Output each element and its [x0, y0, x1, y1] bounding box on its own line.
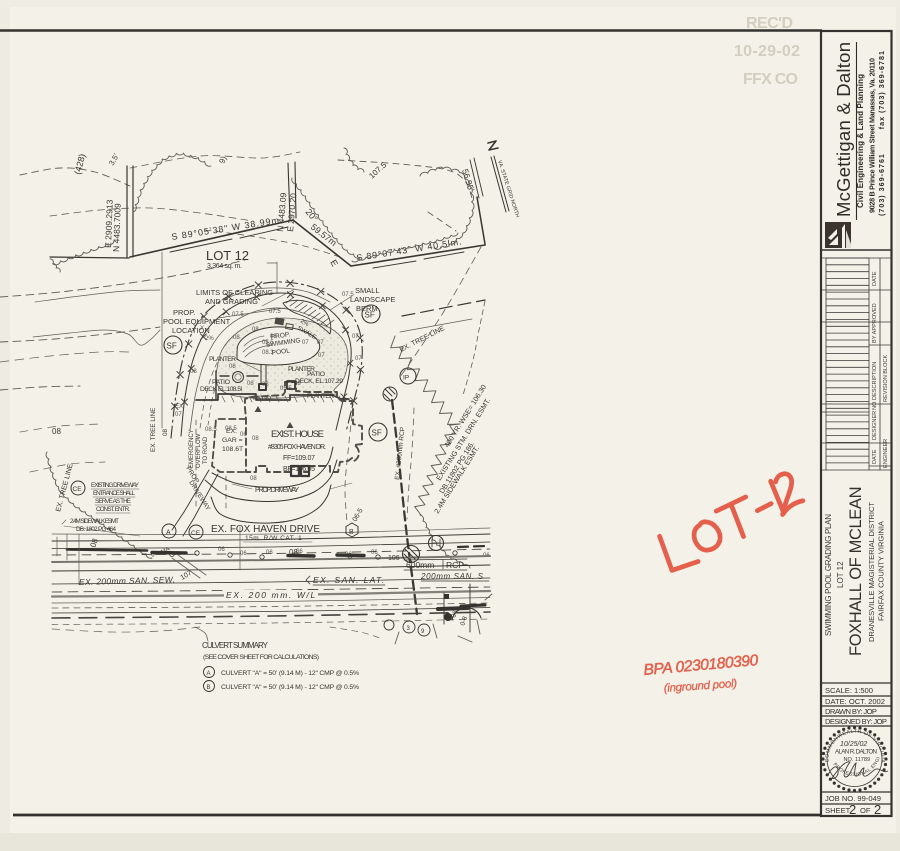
svg-text:BY APPROVED: BY APPROVED: [872, 303, 878, 343]
svg-text:07: 07: [352, 334, 359, 340]
svg-text:DESCRIPTION: DESCRIPTION: [872, 362, 878, 400]
svg-text:LOCATION: LOCATION: [172, 326, 210, 335]
svg-text:AND GRADING: AND GRADING: [205, 297, 258, 306]
svg-text:SCALE: 1:500: SCALE: 1:500: [825, 686, 873, 695]
svg-text:08: 08: [190, 369, 197, 375]
svg-text:EX.: EX.: [175, 404, 185, 410]
svg-text:EXISTING DRIVEWAY: EXISTING DRIVEWAY: [91, 482, 140, 489]
svg-text:A: A: [207, 671, 211, 677]
svg-text:DRAWN BY: JOP: DRAWN BY: JOP: [825, 707, 877, 716]
svg-text:08: 08: [252, 327, 259, 333]
svg-text:(703) 369-6761 fax (703: (703) 369-6761 fax (703) 369-6781: [877, 51, 886, 216]
svg-text:SHEET: SHEET: [825, 806, 851, 815]
svg-text:PROP.: PROP.: [173, 308, 195, 317]
svg-text:08: 08: [229, 364, 236, 370]
svg-text:EXIST. HOUSE: EXIST. HOUSE: [271, 429, 324, 440]
svg-text:FFX CO: FFX CO: [743, 71, 798, 88]
svg-text:A: A: [166, 530, 171, 537]
svg-text:SMALL: SMALL: [355, 286, 380, 295]
svg-text:EX. SAN. LAT.: EX. SAN. LAT.: [313, 575, 385, 585]
svg-text:08: 08: [233, 335, 240, 341]
svg-text:NO: NO: [872, 401, 878, 410]
svg-text:TO ROAD: TO ROAD: [203, 436, 209, 464]
svg-text:DATE: DATE: [872, 271, 878, 286]
svg-text:108.6T: 108.6T: [222, 446, 243, 453]
svg-text:08: 08: [247, 381, 254, 387]
svg-text:CULVERT ʺAʺ = 50ʼ (9.14 M): CULVERT ʺAʺ = 50ʼ (9.14 M) - 12ʺ CMP @ 0…: [221, 669, 359, 677]
svg-text:OF: OF: [860, 806, 871, 815]
svg-text:FOXHALL OF MCLEAN: FOXHALL OF MCLEAN: [847, 486, 865, 656]
svg-text:EX.: EX.: [226, 428, 237, 435]
svg-text:E 2909.2913: E 2909.2913: [103, 199, 115, 248]
svg-text:08: 08: [250, 476, 257, 482]
svg-text:DECK EL.108.5l: DECK EL.108.5l: [200, 386, 242, 393]
svg-text:PLANTER: PLANTER: [307, 393, 334, 400]
svg-text:08: 08: [262, 382, 269, 388]
svg-text:RCP: RCP: [446, 560, 464, 570]
svg-text:X: X: [200, 326, 204, 332]
svg-text:07: 07: [355, 356, 362, 362]
svg-text:GAR =: GAR =: [222, 437, 243, 444]
svg-text:07: 07: [317, 340, 324, 346]
svg-text:07.5: 07.5: [232, 312, 244, 318]
svg-text:DESIGNED BY: JOP: DESIGNED BY: JOP: [825, 717, 887, 726]
svg-text:SF: SF: [365, 311, 375, 320]
svg-text:LOT 12: LOT 12: [836, 561, 845, 588]
svg-text:EX. TREE LINE: EX. TREE LINE: [150, 408, 157, 452]
svg-text:07.5: 07.5: [269, 309, 281, 315]
svg-text:08: 08: [162, 428, 169, 436]
svg-text:SERVE AS THE: SERVE AS THE: [95, 498, 131, 505]
svg-text:10/25/02: 10/25/02: [840, 741, 867, 748]
svg-text:OVERFLOW: OVERFLOW: [196, 433, 202, 468]
svg-text:ALAN R. DALTON: ALAN R. DALTON: [835, 749, 877, 756]
svg-text:08: 08: [270, 334, 277, 340]
svg-text:IP: IP: [403, 375, 409, 382]
svg-text:PATIO: PATIO: [212, 379, 230, 386]
svg-text:PROP. DRIVEWAY: PROP. DRIVEWAY: [255, 487, 299, 494]
svg-text:2: 2: [849, 802, 856, 817]
svg-text:CULVERT ʺAʺ = 50ʼ (9.14 M): CULVERT ʺAʺ = 50ʼ (9.14 M) - 12ʺ CMP @ 0…: [221, 683, 359, 691]
svg-text:07.5: 07.5: [342, 292, 354, 298]
svg-text:EX. 200 mm. W/L: EX. 200 mm. W/L: [226, 590, 316, 600]
svg-text:SF: SF: [167, 342, 177, 351]
svg-text:07: 07: [318, 353, 325, 359]
svg-text:ENGINEER: ENGINEER: [883, 439, 889, 468]
svg-text:07: 07: [175, 412, 182, 418]
svg-text:LOT 12: LOT 12: [206, 248, 249, 263]
svg-text:POOL EQUIPMENT: POOL EQUIPMENT: [163, 317, 231, 326]
svg-text:DRANESVILLE MAGISTERIAL DISTRI: DRANESVILLE MAGISTERIAL DISTRICT: [867, 502, 876, 642]
svg-text:#8305 FOX HAVEN DR.: #8305 FOX HAVEN DR.: [268, 444, 326, 451]
svg-text:Civil Engineering & Land Plann: Civil Engineering & Land Planning: [856, 74, 865, 208]
svg-text:06: 06: [266, 550, 273, 556]
svg-text:9028 B Prince William Street M: 9028 B Prince William Street Manassas, V…: [868, 58, 877, 213]
svg-text:PATIO: PATIO: [307, 371, 325, 378]
svg-text:EX. FOX HAVEN DRIVE: EX. FOX HAVEN DRIVE: [211, 524, 321, 535]
svg-text:08: 08: [252, 436, 259, 442]
svg-text:106: 106: [388, 555, 400, 562]
svg-text:CULVERT SUMMARY: CULVERT SUMMARY: [202, 641, 269, 650]
svg-text:DATE: DATE: [872, 449, 878, 464]
svg-text:2%: 2%: [205, 336, 214, 342]
svg-text:2.4M SIDEWALK ESMT: 2.4M SIDEWALK ESMT: [70, 518, 119, 525]
svg-text:05.5: 05.5: [262, 340, 274, 346]
svg-text:3,364 sq. m.: 3,364 sq. m.: [207, 263, 242, 270]
svg-text:08.3: 08.3: [262, 350, 274, 356]
svg-text:FF=109.07: FF=109.07: [283, 455, 315, 462]
svg-text:600mm: 600mm: [406, 560, 434, 570]
svg-text:DECK, EL.107.29: DECK, EL.107.29: [295, 378, 343, 385]
svg-text:McGettigan & Dalton: McGettigan & Dalton: [833, 42, 854, 217]
svg-text:CONST. ENTR.: CONST. ENTR.: [96, 506, 130, 513]
svg-text:DATE: OCT. 2002: DATE: OCT. 2002: [825, 697, 885, 706]
svg-text:SF: SF: [372, 429, 382, 438]
svg-text:CE: CE: [191, 530, 201, 537]
svg-text:15m. R/W CAT. 1: 15m. R/W CAT. 1: [245, 535, 302, 542]
svg-text:2: 2: [874, 802, 881, 817]
svg-text:REVISION BLOCK: REVISION BLOCK: [883, 354, 889, 402]
svg-text:DESIGNER: DESIGNER: [872, 411, 878, 440]
svg-text:FAIRFAX COUNTY VIRGINIA: FAIRFAX COUNTY VIRGINIA: [877, 520, 886, 621]
svg-text:BF=106.05: BF=106.05: [283, 466, 315, 473]
svg-text:EMERGENCY: EMERGENCY: [189, 429, 195, 468]
svg-text:LANDSCAPE: LANDSCAPE: [350, 295, 395, 304]
svg-text:REC'D: REC'D: [746, 15, 793, 32]
svg-text:200mm SAN. S: 200mm SAN. S: [420, 572, 484, 581]
svg-text:07: 07: [302, 340, 309, 346]
svg-text:B: B: [349, 529, 354, 536]
svg-text:LIMITS OF CLEARING: LIMITS OF CLEARING: [196, 288, 273, 297]
svg-text:CE: CE: [73, 486, 83, 493]
svg-text:(SEE COVER SHEET FOR CALCULATI: (SEE COVER SHEET FOR CALCULATIONS): [203, 654, 319, 661]
svg-text:PLANTER: PLANTER: [209, 356, 236, 363]
svg-text:SWIMMING POOL GRADING PLAN: SWIMMING POOL GRADING PLAN: [824, 514, 833, 636]
svg-text:B: B: [207, 685, 211, 691]
svg-text:ENTRANCE SHALL: ENTRANCE SHALL: [93, 490, 135, 497]
svg-text:10-29-02: 10-29-02: [734, 43, 800, 60]
svg-text:08: 08: [52, 427, 61, 436]
